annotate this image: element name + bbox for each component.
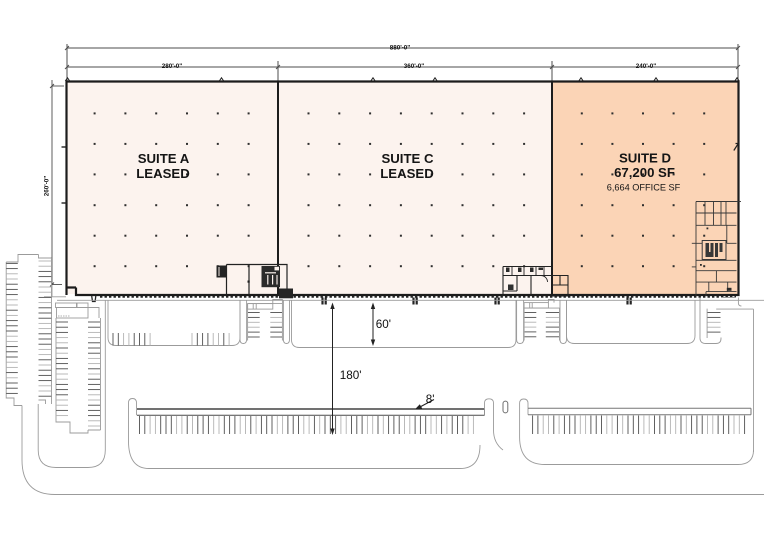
svg-text:180': 180' <box>340 369 362 382</box>
svg-text:260'-0": 260'-0" <box>44 176 51 197</box>
svg-text:240'-0": 240'-0" <box>636 63 657 70</box>
svg-text:67,200 SF: 67,200 SF <box>614 165 675 180</box>
svg-text:60': 60' <box>376 318 391 331</box>
svg-text:280'-0": 280'-0" <box>162 63 183 70</box>
svg-text:6,664 OFFICE SF: 6,664 OFFICE SF <box>607 183 681 193</box>
svg-text:8': 8' <box>426 393 435 406</box>
svg-text:LEASED: LEASED <box>380 166 434 181</box>
svg-text:SUITE D: SUITE D <box>619 151 671 166</box>
svg-text:880'-0": 880'-0" <box>390 45 411 52</box>
svg-text:360'-0": 360'-0" <box>404 63 425 70</box>
svg-text:LEASED: LEASED <box>136 166 190 181</box>
svg-text:SUITE C: SUITE C <box>381 151 433 166</box>
svg-text:SUITE A: SUITE A <box>138 151 190 166</box>
